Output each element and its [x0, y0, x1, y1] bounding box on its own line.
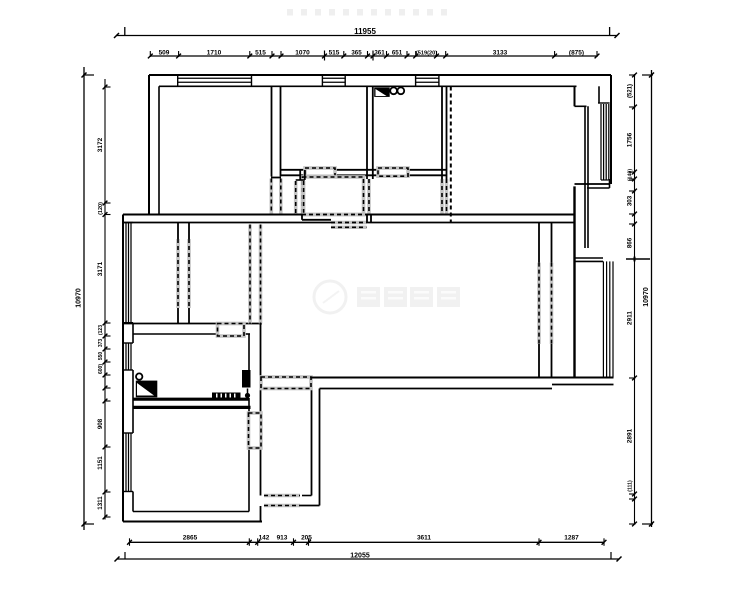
- svg-text:1287: 1287: [564, 535, 579, 542]
- svg-text:515: 515: [329, 50, 340, 57]
- svg-text:(521): (521): [628, 84, 634, 98]
- svg-text:(519(20): (519(20): [416, 51, 437, 57]
- svg-text:373: 373: [98, 339, 104, 348]
- svg-text:3171: 3171: [97, 261, 104, 276]
- svg-text:205: 205: [301, 535, 312, 542]
- svg-text:651: 651: [392, 50, 403, 57]
- svg-text:303: 303: [627, 195, 634, 206]
- svg-text:361: 361: [374, 50, 385, 57]
- svg-text:2865: 2865: [183, 535, 198, 542]
- svg-text:12055: 12055: [350, 553, 370, 560]
- svg-text:1710: 1710: [207, 50, 222, 57]
- svg-text:1070: 1070: [295, 50, 310, 57]
- svg-text:908: 908: [97, 418, 104, 429]
- svg-text:(120): (120): [98, 202, 104, 215]
- svg-text:2891: 2891: [627, 428, 634, 443]
- svg-text:550: 550: [98, 352, 104, 361]
- svg-text:515: 515: [255, 50, 266, 57]
- svg-text:(875): (875): [569, 50, 584, 57]
- svg-text:142: 142: [259, 535, 270, 542]
- svg-text:1151: 1151: [97, 456, 104, 470]
- svg-text:1756: 1756: [627, 132, 634, 147]
- svg-text:3611: 3611: [417, 535, 431, 542]
- svg-text:866: 866: [627, 237, 634, 248]
- svg-text:1311: 1311: [97, 496, 104, 510]
- svg-text:10970: 10970: [643, 287, 650, 307]
- svg-text:3172: 3172: [97, 137, 104, 152]
- svg-text:(111): (111): [628, 480, 634, 492]
- svg-text:2911: 2911: [627, 311, 634, 325]
- svg-text:365: 365: [351, 50, 362, 57]
- svg-text:3133: 3133: [493, 50, 508, 57]
- svg-text:10970: 10970: [76, 288, 83, 308]
- svg-text:600): 600): [98, 364, 104, 374]
- svg-text:509: 509: [159, 50, 170, 57]
- svg-text:11955: 11955: [354, 27, 376, 36]
- svg-text:(140): (140): [628, 169, 634, 181]
- svg-text:(123: (123: [98, 325, 104, 335]
- svg-text:913: 913: [277, 535, 288, 542]
